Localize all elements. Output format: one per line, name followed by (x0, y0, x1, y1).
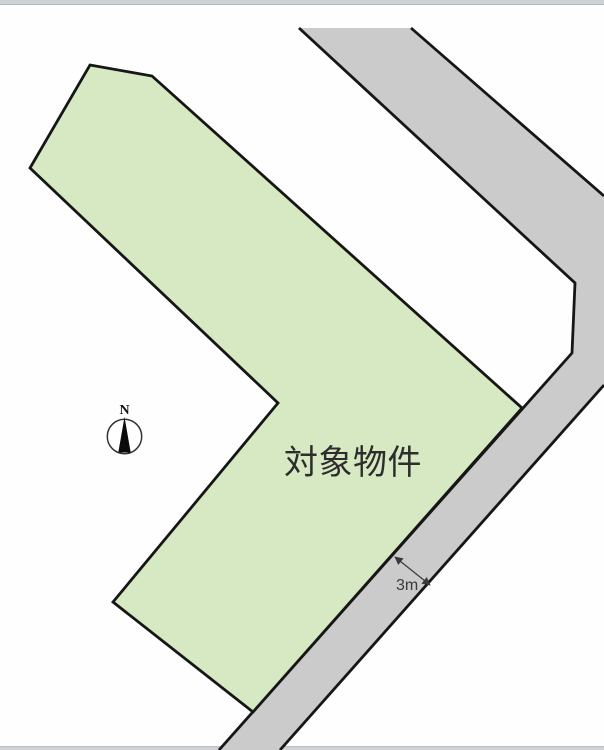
compass-north-label: N (119, 403, 129, 418)
parcel-label: 対象物件 (284, 444, 422, 482)
site-plan-canvas: 対象物件 3m N (0, 0, 604, 750)
dimension-label: 3m (396, 577, 418, 594)
site-plan-page: 対象物件 3m N (0, 0, 604, 750)
compass: N (107, 403, 141, 454)
